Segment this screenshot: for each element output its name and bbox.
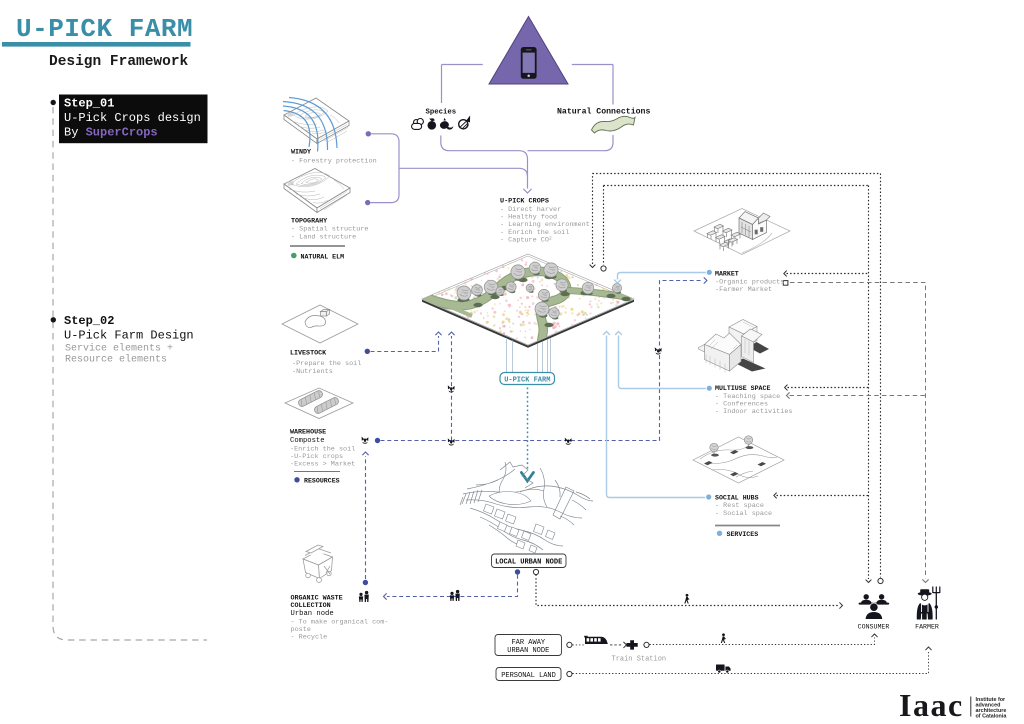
svg-text:U-PICK FARM: U-PICK FARM bbox=[504, 376, 550, 384]
svg-text:TOPOGRAHY: TOPOGRAHY bbox=[291, 218, 327, 226]
svg-text:URBAN NODE: URBAN NODE bbox=[507, 647, 549, 655]
svg-text:FARMER: FARMER bbox=[915, 624, 939, 631]
svg-text:WAREHOUSE: WAREHOUSE bbox=[290, 429, 326, 437]
svg-text:Train Station: Train Station bbox=[612, 656, 667, 664]
svg-text:CONSUMER: CONSUMER bbox=[858, 624, 890, 631]
svg-text:- Social space: - Social space bbox=[715, 510, 772, 518]
svg-text:FAR AWAY: FAR AWAY bbox=[511, 639, 545, 647]
svg-text:NATURAL ELM: NATURAL ELM bbox=[301, 253, 345, 260]
svg-text:U-Pick Crops design: U-Pick Crops design bbox=[64, 111, 201, 125]
svg-text:LOCAL URBAN NODE: LOCAL URBAN NODE bbox=[495, 559, 562, 567]
svg-text:Step_02: Step_02 bbox=[64, 314, 114, 328]
svg-text:SERVICES: SERVICES bbox=[727, 531, 759, 538]
svg-text:Service elements +: Service elements + bbox=[65, 343, 173, 355]
svg-text:U-PICK CROPS: U-PICK CROPS bbox=[500, 198, 549, 206]
svg-text:MARKET: MARKET bbox=[715, 270, 739, 277]
svg-text:of Catalonia: of Catalonia bbox=[976, 714, 1008, 720]
svg-text:LIVESTOCK: LIVESTOCK bbox=[290, 350, 327, 358]
svg-text:Species: Species bbox=[426, 109, 457, 117]
svg-text:-Prepare the soil: -Prepare the soil bbox=[292, 360, 361, 368]
svg-text:-Farmer Market: -Farmer Market bbox=[715, 286, 772, 294]
svg-text:Composte: Composte bbox=[290, 437, 325, 445]
svg-text:By SuperCrops: By SuperCrops bbox=[64, 126, 158, 140]
svg-text:Design Framework: Design Framework bbox=[49, 54, 189, 70]
svg-text:U-PICK FARM: U-PICK FARM bbox=[16, 14, 193, 44]
svg-text:RESOURCES: RESOURCES bbox=[304, 478, 340, 485]
svg-text:Natural Connections: Natural Connections bbox=[557, 107, 650, 117]
svg-text:- Recycle: - Recycle bbox=[291, 634, 328, 642]
svg-text:SOCIAL HUBS: SOCIAL HUBS bbox=[715, 495, 759, 502]
svg-text:-Nutrients: -Nutrients bbox=[292, 368, 333, 376]
svg-text:-Organic products: -Organic products bbox=[715, 278, 784, 286]
svg-text:-Excess > Market: -Excess > Market bbox=[290, 461, 355, 469]
svg-text:PERSONAL LAND: PERSONAL LAND bbox=[501, 672, 556, 680]
svg-text:- Indoor activities: - Indoor activities bbox=[715, 408, 793, 416]
svg-text:COLLECTION: COLLECTION bbox=[291, 602, 331, 610]
svg-text:- Spatial structure: - Spatial structure bbox=[291, 226, 369, 234]
svg-text:U-Pick Farm Design: U-Pick Farm Design bbox=[64, 329, 194, 343]
svg-text:Iaac: Iaac bbox=[899, 687, 964, 723]
svg-text:WINDY: WINDY bbox=[291, 149, 311, 157]
svg-text:Step_01: Step_01 bbox=[64, 97, 114, 111]
svg-text:Resource elements: Resource elements bbox=[65, 354, 167, 366]
svg-text:- Capture CO2: - Capture CO2 bbox=[500, 235, 552, 244]
svg-text:- Forestry protection: - Forestry protection bbox=[291, 158, 377, 166]
svg-text:Urban node: Urban node bbox=[291, 610, 334, 618]
svg-text:- Land structure: - Land structure bbox=[291, 234, 356, 242]
svg-text:MULTIUSE SPACE: MULTIUSE SPACE bbox=[715, 385, 770, 392]
